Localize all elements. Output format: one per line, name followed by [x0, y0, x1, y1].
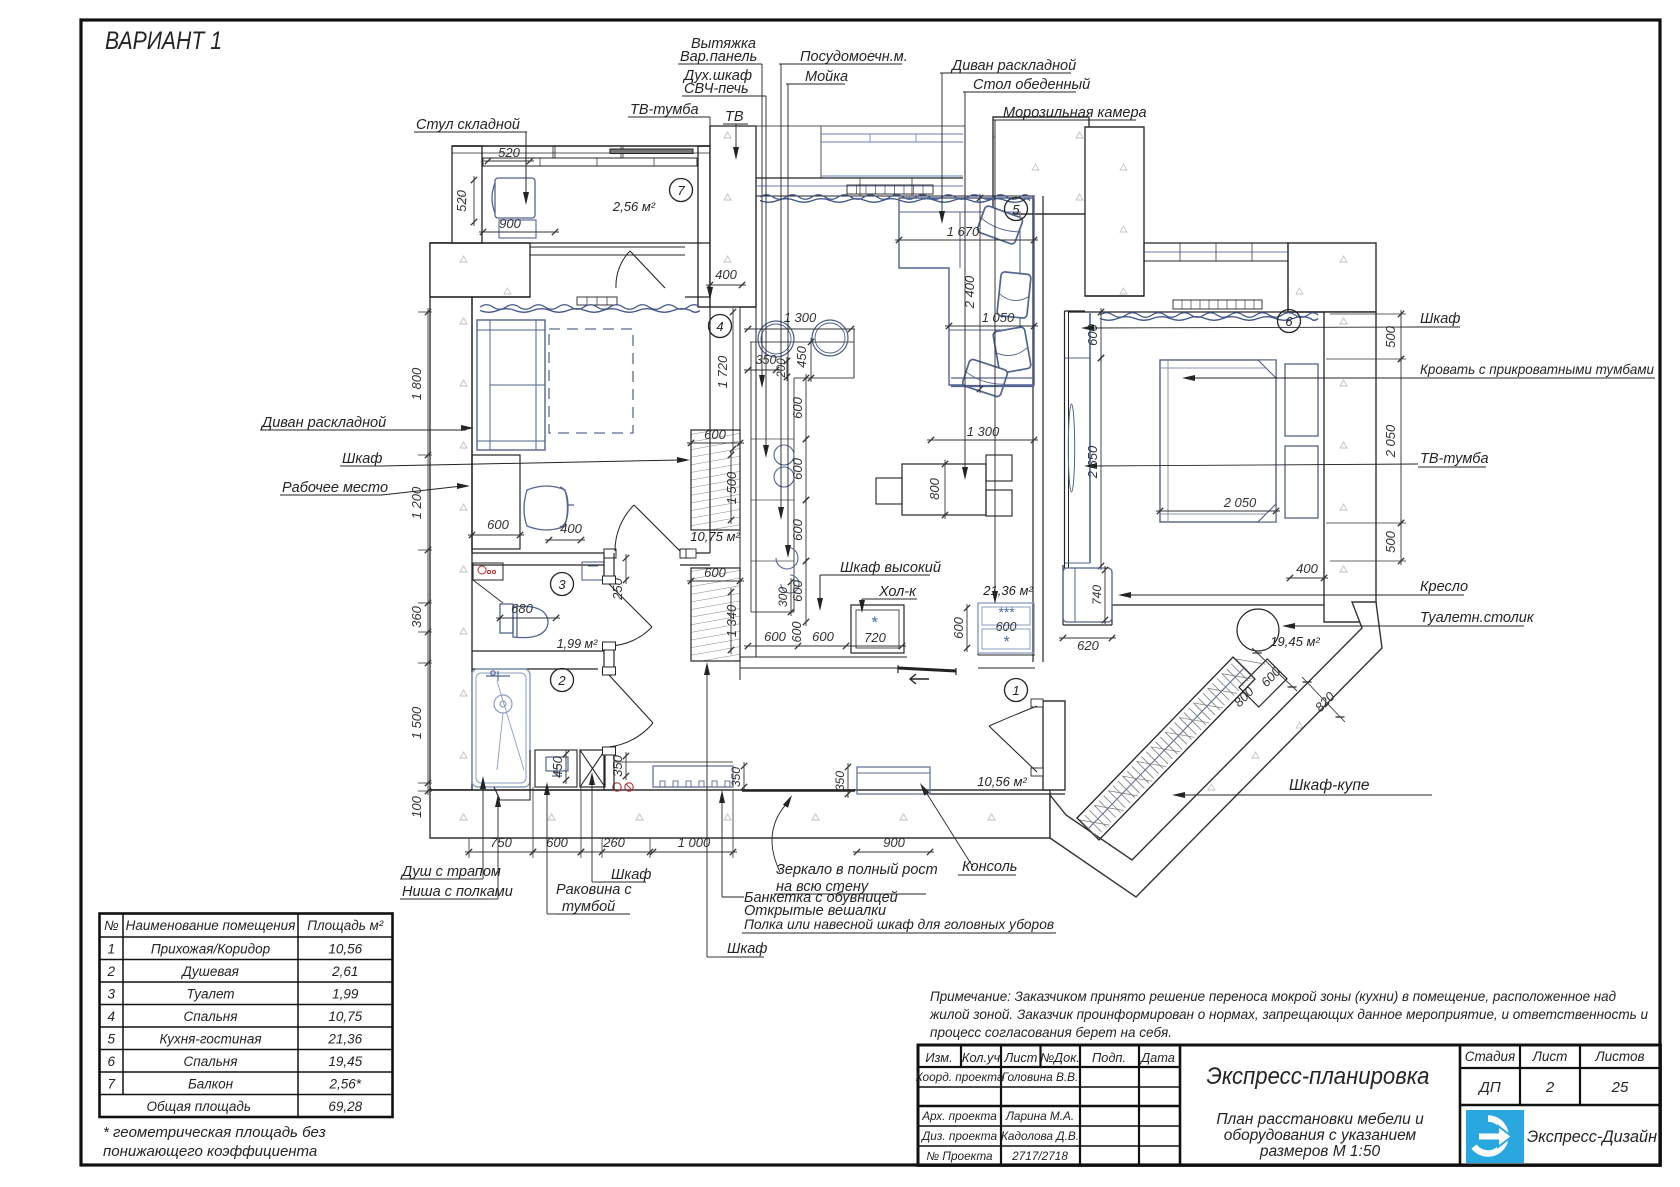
- svg-text:600: 600: [790, 396, 805, 418]
- svg-text:№ Проекта: № Проекта: [926, 1149, 993, 1163]
- svg-text:600: 600: [704, 565, 726, 580]
- svg-text:1 300: 1 300: [784, 310, 817, 325]
- svg-text:Кол.уч: Кол.уч: [962, 1050, 1001, 1065]
- svg-text:Арх. проекта: Арх. проекта: [921, 1109, 997, 1123]
- svg-text:Вар.панель: Вар.панель: [680, 49, 757, 65]
- svg-text:Спальня: Спальня: [184, 1054, 238, 1069]
- svg-text:Диван раскладной: Диван раскладной: [950, 58, 1076, 74]
- svg-text:Кухня-гостиная: Кухня-гостиная: [159, 1032, 261, 1047]
- svg-text:520: 520: [498, 145, 520, 160]
- svg-text:3: 3: [558, 577, 566, 592]
- svg-text:Ниша с полками: Ниша с полками: [402, 884, 513, 900]
- svg-text:1,99 м²: 1,99 м²: [557, 637, 598, 651]
- svg-text:Стадия: Стадия: [1465, 1049, 1516, 1064]
- svg-text:Зеркало в полный рост: Зеркало в полный рост: [776, 862, 938, 878]
- svg-text:740: 740: [1090, 585, 1104, 605]
- svg-text:*: *: [1003, 634, 1010, 651]
- svg-text:Площадь м²: Площадь м²: [307, 918, 384, 933]
- svg-text:500: 500: [1383, 325, 1398, 347]
- svg-text:7: 7: [677, 183, 685, 198]
- svg-text:№Док.: №Док.: [1040, 1050, 1080, 1065]
- svg-text:1 500: 1 500: [724, 471, 739, 504]
- svg-text:***: ***: [998, 604, 1015, 620]
- svg-text:Изм.: Изм.: [925, 1050, 952, 1065]
- svg-text:Рабочее место: Рабочее место: [282, 480, 388, 496]
- svg-text:600: 600: [764, 629, 786, 644]
- svg-text:1 720: 1 720: [715, 355, 730, 388]
- svg-text:2: 2: [106, 964, 115, 979]
- svg-text:Лист: Лист: [1004, 1050, 1038, 1065]
- svg-text:Наименование помещения: Наименование помещения: [126, 918, 296, 933]
- svg-text:Стол обеденный: Стол обеденный: [973, 77, 1090, 93]
- svg-text:500: 500: [1383, 530, 1398, 552]
- svg-text:10,75 м²: 10,75 м²: [690, 529, 740, 544]
- svg-text:900: 900: [499, 216, 521, 231]
- svg-text:1 670: 1 670: [947, 224, 980, 239]
- svg-text:Шкаф: Шкаф: [1420, 311, 1460, 327]
- svg-text:1 050: 1 050: [982, 310, 1015, 325]
- svg-text:21,36: 21,36: [327, 1032, 362, 1047]
- svg-text:360: 360: [409, 605, 424, 627]
- svg-text:Дата: Дата: [1139, 1050, 1175, 1065]
- svg-text:1,99: 1,99: [332, 987, 359, 1002]
- svg-text:2,61: 2,61: [331, 964, 358, 979]
- svg-text:25: 25: [1611, 1079, 1629, 1096]
- svg-text:2 400: 2 400: [962, 275, 977, 309]
- svg-text:5: 5: [1012, 202, 1020, 217]
- svg-text:100: 100: [409, 795, 424, 817]
- svg-text:10,56: 10,56: [328, 942, 362, 957]
- svg-text:6: 6: [107, 1054, 115, 1069]
- svg-text:2: 2: [557, 673, 566, 688]
- svg-text:300: 300: [776, 587, 790, 607]
- svg-text:1 340: 1 340: [724, 604, 739, 637]
- svg-text:1: 1: [107, 942, 115, 957]
- svg-text:Шкаф высокий: Шкаф высокий: [840, 560, 941, 576]
- svg-text:Кровать с прикроватными тумбам: Кровать с прикроватными тумбами: [1420, 361, 1654, 377]
- svg-text:2 650: 2 650: [1085, 445, 1100, 479]
- svg-text:400: 400: [560, 521, 582, 536]
- svg-text:ДП: ДП: [1477, 1079, 1501, 1096]
- svg-text:4: 4: [716, 319, 723, 334]
- svg-text:2 050: 2 050: [1223, 495, 1257, 510]
- svg-text:тумбой: тумбой: [562, 899, 615, 915]
- svg-text:Шкаф: Шкаф: [342, 451, 382, 467]
- svg-text:ВАРИАНТ 1: ВАРИАНТ 1: [105, 27, 222, 55]
- svg-text:Мойка: Мойка: [805, 69, 848, 85]
- svg-text:3: 3: [107, 987, 115, 1002]
- svg-text:1 000: 1 000: [678, 835, 711, 850]
- svg-text:7: 7: [107, 1077, 115, 1092]
- svg-text:260: 260: [602, 835, 625, 850]
- svg-text:Туалетн.столик: Туалетн.столик: [1420, 610, 1535, 626]
- svg-text:Диз. проекта: Диз. проекта: [920, 1129, 997, 1143]
- svg-text:10,75: 10,75: [328, 1009, 362, 1024]
- svg-text:понижающего коэффициента: понижающего коэффициента: [103, 1143, 317, 1160]
- svg-text:2,56 м²: 2,56 м²: [612, 199, 656, 214]
- svg-text:ТВ: ТВ: [725, 109, 744, 125]
- svg-text:Подп.: Подп.: [1092, 1050, 1126, 1065]
- svg-text:СВЧ-печь: СВЧ-печь: [684, 81, 749, 97]
- svg-text:750: 750: [490, 835, 512, 850]
- svg-text:2: 2: [1545, 1079, 1555, 1096]
- svg-text:800: 800: [927, 477, 942, 499]
- svg-text:Экспресс-Дизайн: Экспресс-Дизайн: [1527, 1127, 1658, 1146]
- svg-text:800: 800: [1231, 683, 1257, 710]
- svg-text:Шкаф-купе: Шкаф-купе: [1289, 777, 1370, 794]
- svg-text:350: 350: [833, 771, 847, 791]
- svg-text:Стул складной: Стул складной: [416, 117, 520, 133]
- svg-text:21,36 м²: 21,36 м²: [982, 583, 1033, 598]
- svg-text:900: 900: [883, 835, 905, 850]
- svg-text:Шкаф: Шкаф: [611, 867, 651, 883]
- svg-text:600: 600: [790, 518, 805, 540]
- svg-text:Экспресс-планировка: Экспресс-планировка: [1207, 1063, 1430, 1090]
- svg-text:Консоль: Консоль: [962, 859, 1017, 875]
- svg-text:400: 400: [1296, 561, 1318, 576]
- svg-text:10,56 м²: 10,56 м²: [977, 774, 1027, 789]
- svg-text:19,45: 19,45: [328, 1054, 362, 1069]
- svg-text:620: 620: [1077, 638, 1099, 653]
- svg-text:350: 350: [729, 767, 743, 787]
- svg-text:2717/2718: 2717/2718: [1011, 1149, 1068, 1163]
- svg-text:400: 400: [715, 267, 737, 282]
- svg-text:350: 350: [610, 754, 625, 776]
- svg-text:Головина В.В.: Головина В.В.: [1002, 1070, 1079, 1084]
- svg-text:Прихожая/Коридор: Прихожая/Коридор: [151, 942, 271, 957]
- svg-text:Спальня: Спальня: [184, 1009, 238, 1024]
- svg-text:450: 450: [794, 345, 809, 367]
- svg-text:520: 520: [454, 189, 469, 211]
- svg-text:Раковина с: Раковина с: [556, 882, 632, 898]
- svg-text:План расстановки мебели и: План расстановки мебели и: [1216, 1111, 1424, 1128]
- svg-text:ТВ-тумба: ТВ-тумба: [630, 102, 699, 118]
- svg-text:Кресло: Кресло: [1420, 579, 1468, 595]
- svg-text:Общая площадь: Общая площадь: [147, 1099, 251, 1114]
- svg-text:2,56*: 2,56*: [328, 1077, 361, 1092]
- svg-text:200: 200: [776, 358, 788, 379]
- svg-text:1: 1: [1012, 683, 1019, 698]
- svg-text:Балкон: Балкон: [188, 1077, 234, 1092]
- svg-text:Ларина М.А.: Ларина М.А.: [1005, 1109, 1074, 1123]
- svg-text:600: 600: [704, 427, 726, 442]
- svg-text:600: 600: [790, 622, 804, 643]
- svg-text:Примечание: Заказчиком принято: Примечание: Заказчиком принято решение п…: [930, 988, 1616, 1004]
- svg-text:Коорд. проекта: Коорд. проекта: [916, 1070, 1004, 1084]
- svg-text:Листов: Листов: [1594, 1049, 1644, 1064]
- svg-text:процесс согласования берет на: процесс согласования берет на себя.: [930, 1024, 1172, 1040]
- svg-text:600: 600: [996, 620, 1017, 634]
- svg-text:Хол-к: Хол-к: [878, 584, 917, 600]
- svg-text:600: 600: [546, 835, 568, 850]
- svg-text:69,28: 69,28: [328, 1099, 362, 1114]
- svg-text:жилой зоной. Заказчик проинфор: жилой зоной. Заказчик проинформирован о …: [929, 1006, 1648, 1022]
- svg-text:1 500: 1 500: [409, 706, 424, 739]
- svg-text:Полка или навесной шкаф для го: Полка или навесной шкаф для головных убо…: [744, 916, 1054, 932]
- svg-text:оборудования с указанием: оборудования с указанием: [1224, 1127, 1417, 1144]
- svg-text:размеров М 1:50: размеров М 1:50: [1259, 1143, 1381, 1160]
- svg-text:6: 6: [1285, 314, 1293, 329]
- svg-text:4: 4: [107, 1009, 115, 1024]
- svg-text:Морозильная камера: Морозильная камера: [1003, 105, 1147, 121]
- svg-text:Лист: Лист: [1532, 1049, 1568, 1064]
- svg-text:600: 600: [487, 517, 509, 532]
- svg-text:ТВ-тумба: ТВ-тумба: [1420, 451, 1489, 467]
- svg-text:№: №: [104, 918, 119, 933]
- svg-text:450: 450: [550, 755, 565, 777]
- svg-text:* геометрическая площадь без: * геометрическая площадь без: [103, 1124, 326, 1141]
- svg-text:Душ с трапом: Душ с трапом: [400, 864, 501, 880]
- svg-text:Посудомоечн.м.: Посудомоечн.м.: [800, 49, 908, 65]
- svg-text:Туалет: Туалет: [186, 987, 234, 1002]
- svg-text:5: 5: [107, 1032, 115, 1047]
- svg-text:Кадолова Д.В.: Кадолова Д.В.: [1001, 1129, 1079, 1143]
- svg-text:600: 600: [951, 616, 966, 638]
- svg-text:2 050: 2 050: [1383, 424, 1398, 458]
- svg-text:600: 600: [790, 457, 805, 479]
- svg-text:Шкаф: Шкаф: [727, 941, 767, 957]
- svg-text:Диван раскладной: Диван раскладной: [260, 415, 386, 431]
- svg-text:600: 600: [812, 629, 834, 644]
- svg-text:720: 720: [864, 630, 886, 645]
- svg-text:1 800: 1 800: [409, 367, 424, 400]
- svg-text:680: 680: [511, 601, 533, 616]
- svg-text:Душевая: Душевая: [180, 964, 239, 979]
- svg-text:600: 600: [790, 579, 805, 601]
